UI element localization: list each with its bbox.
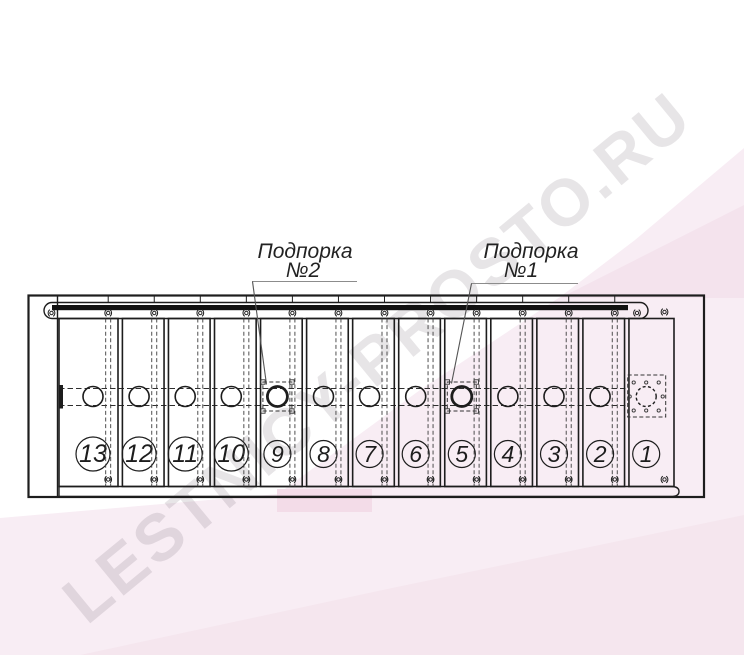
plank-number: 7 [363, 441, 377, 467]
technical-drawing: 13121110987654321 Подпорка №2 Подпорка №… [0, 0, 744, 655]
plank-layer: 13121110987654321 [59, 297, 674, 487]
support1-leader-line [452, 284, 472, 384]
screw-icon [661, 309, 668, 316]
bolt-dot [657, 381, 660, 384]
hole-circle [314, 387, 334, 407]
screw-icon [335, 310, 342, 317]
hole-circle [360, 387, 380, 407]
plank-number: 12 [125, 440, 153, 468]
plank-number: 5 [455, 441, 468, 467]
hole-circle [267, 387, 287, 407]
bottom-rail [59, 487, 679, 497]
screw-icon [634, 310, 641, 317]
screw-icon [105, 310, 112, 317]
hole-circle [590, 387, 610, 407]
bolt-dot [657, 409, 660, 412]
screw-icon [381, 310, 388, 317]
screw-icon [661, 476, 668, 483]
screw-icon [519, 310, 526, 317]
bolt-dot [645, 381, 648, 384]
hole-circle [452, 387, 472, 407]
bolt-dot [632, 381, 635, 384]
plank-number: 3 [548, 441, 561, 467]
hole-circle [175, 387, 195, 407]
screw-icon [427, 310, 434, 317]
plank-number: 1 [640, 441, 653, 467]
support2-leader-line [253, 282, 267, 385]
bolt-dot [632, 409, 635, 412]
hole-circle [406, 387, 426, 407]
hole-circle [129, 387, 149, 407]
hole-circle [544, 387, 564, 407]
top-rail-stripe [52, 305, 628, 310]
support1-label-subtitle: №1 [504, 259, 538, 282]
plank-number: 9 [271, 441, 284, 467]
screw-icon [197, 310, 204, 317]
screw-icon [243, 310, 250, 317]
screw-icon [473, 310, 480, 317]
hole-circle [221, 387, 241, 407]
plank-number: 2 [593, 441, 607, 467]
hole-circle [498, 387, 518, 407]
screw-icon [151, 310, 158, 317]
screw-icon [48, 310, 55, 317]
plank-number: 8 [317, 441, 330, 467]
plank-number: 4 [502, 441, 515, 467]
hole-circle [636, 387, 656, 407]
hole-circle [83, 387, 103, 407]
plank-number: 10 [217, 440, 245, 468]
screw-icon [565, 310, 572, 317]
bolt-dot [645, 409, 648, 412]
screw-icon [289, 310, 296, 317]
screenshot-canvas: LESTNICY-PROSTO.RU 13121110987654321 [0, 0, 744, 655]
top-rail [44, 303, 648, 319]
plank-number: 13 [79, 440, 107, 468]
plank-number: 6 [409, 441, 422, 467]
screw-icon [611, 310, 618, 317]
bolt-dot [661, 395, 664, 398]
plank-number: 11 [172, 440, 198, 468]
support2-label-subtitle: №2 [286, 259, 321, 282]
